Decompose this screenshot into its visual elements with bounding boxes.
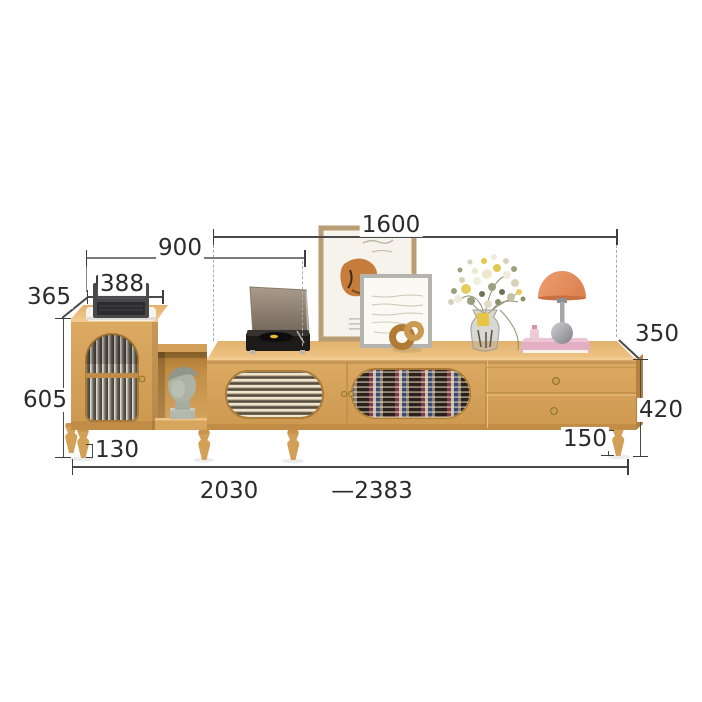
- dim-extension-dash: [213, 245, 214, 341]
- dim-tick: [633, 359, 648, 361]
- dim-extension-dash: [302, 261, 303, 346]
- dim-tick: [627, 459, 629, 475]
- tv-cabinet: [207, 341, 643, 430]
- dim-tick: [633, 456, 648, 458]
- dim-tick: [55, 318, 71, 320]
- turntable: [246, 287, 310, 354]
- bust-sculpture: [168, 367, 198, 419]
- door-knob: [341, 391, 346, 396]
- dim-tick: [55, 457, 71, 459]
- dim-tick: [86, 250, 88, 267]
- glass-door-left: [226, 371, 323, 418]
- dim-label-cabinet-width: 388: [98, 272, 146, 296]
- dim-label-cabinet-depth: 365: [25, 285, 73, 309]
- dim-label-total-width-min: 2030: [198, 479, 261, 503]
- dim-tick: [72, 459, 74, 475]
- door-knob: [348, 391, 353, 396]
- furniture-illustration: [0, 0, 702, 702]
- dim-label-cabinet-height: 605: [21, 388, 69, 412]
- glass-door-right: [352, 369, 470, 418]
- flowers: [448, 254, 526, 308]
- dim-label-stand-depth: 350: [633, 322, 681, 346]
- mushroom-lamp: [538, 271, 586, 344]
- dim-tick: [213, 229, 215, 245]
- dim-tick: [601, 455, 614, 457]
- dim-extension-dash: [616, 245, 617, 337]
- dim-extension: [86, 267, 88, 292]
- drawer-knob: [551, 408, 558, 415]
- dim-label-left-section: 900: [156, 236, 204, 260]
- dim-label-cabinet-leg: 130: [93, 438, 141, 462]
- dim-line-total-width: [72, 466, 628, 468]
- dim-tick: [616, 229, 618, 245]
- perfume-bottle: [530, 325, 539, 342]
- dim-label-top-width: 1600: [360, 213, 423, 237]
- dim-label-total-width-max: —2383: [329, 479, 415, 503]
- product-dimension-diagram: 1600 900 388 365 605 130 350 420 150 203…: [0, 0, 702, 702]
- drawer-knob: [553, 378, 560, 385]
- dim-tick: [304, 250, 306, 267]
- dim-tick: [162, 290, 164, 304]
- door-knob: [139, 376, 145, 382]
- dim-label-stand-leg: 150: [561, 427, 609, 451]
- dim-label-stand-height: 420: [637, 398, 685, 422]
- floor-shadows: [70, 455, 630, 464]
- side-cabinet: [71, 305, 168, 430]
- flower-vase: [448, 254, 526, 351]
